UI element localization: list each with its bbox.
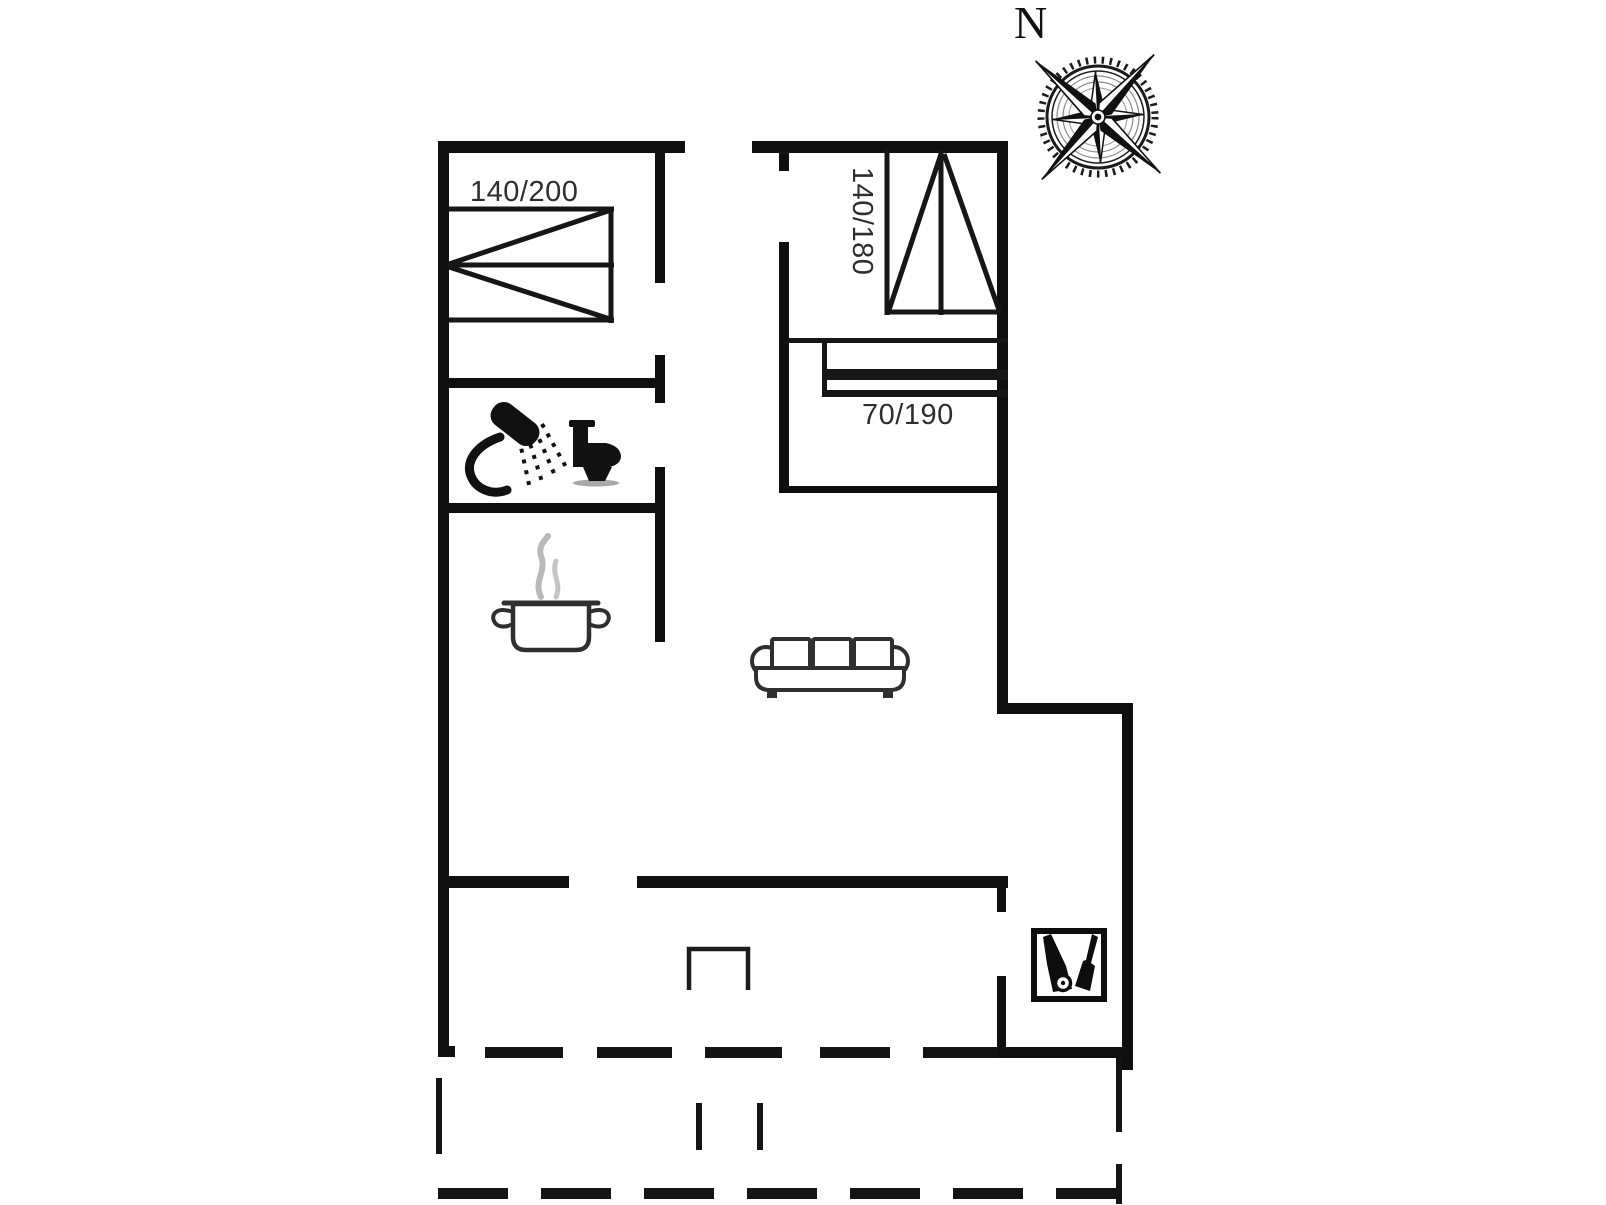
interior-walls (443, 141, 1008, 1054)
steam-2 (555, 561, 558, 597)
chimney-icon (689, 949, 748, 990)
wall-utility-left (997, 976, 1006, 1054)
wall-hall-a (443, 876, 569, 888)
wall-left (438, 141, 449, 1057)
floor-plan-page: 140/200 140/180 70/190 N (0, 0, 1606, 1205)
terrace-left-dash (436, 1078, 442, 1154)
shower-icon (469, 397, 566, 492)
terrace-right-edge-b (1116, 1164, 1122, 1204)
double-bed-vertical-icon (885, 150, 1001, 315)
steam (538, 536, 548, 597)
toilet-icon (569, 420, 621, 487)
sofa-icon (752, 639, 908, 698)
bed-size-label-140-180: 140/180 (845, 167, 878, 275)
terrace-dashed-outline (436, 1047, 1122, 1204)
wall-bottom-solid (997, 1047, 1133, 1058)
floor-plan-drawing (0, 0, 1606, 1205)
wall-kitchen-partition (655, 467, 665, 642)
wall-right-upper (997, 141, 1008, 714)
wall-bathroom-bottom (443, 503, 665, 513)
terrace-right-edge-a (1116, 1058, 1122, 1132)
terrace-mid-dash-1 (696, 1103, 702, 1150)
double-bed-icon (447, 207, 614, 323)
wall-hall-top-jamb (779, 141, 789, 171)
vacuum-cleaner-icon (1034, 931, 1104, 999)
wall-bathroom-top (443, 378, 665, 388)
wall-bedroom1-right-upper (655, 141, 665, 283)
cooking-pot-icon (493, 536, 609, 650)
wall-step (997, 703, 1133, 714)
wall-right-lower (1122, 703, 1133, 1070)
bed-size-label-140-200: 140/200 (470, 176, 578, 209)
wall-left-foot (438, 1046, 455, 1057)
wall-bedroom2-left (779, 242, 789, 492)
north-label: N (1014, 0, 1047, 46)
bunk-bed-icon (788, 338, 1008, 397)
terrace-mid-dash-2 (757, 1103, 763, 1150)
bed-size-label-70-190: 70/190 (862, 399, 954, 432)
wall-bedroom2-bottom (779, 486, 1008, 493)
wall-hall-b (637, 876, 1008, 888)
wall-utility-jamb (997, 888, 1006, 912)
wall-top-left (438, 141, 685, 153)
wall-top-right (752, 141, 1008, 153)
